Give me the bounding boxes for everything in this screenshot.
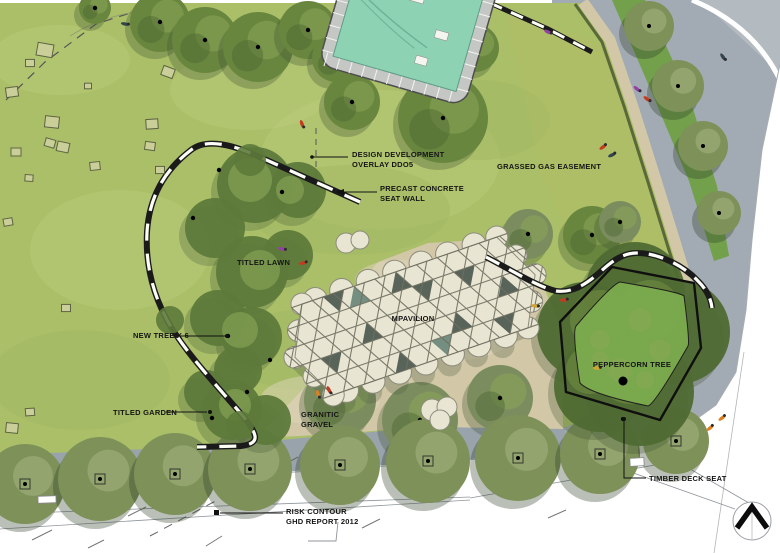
site-plan: DESIGN DEVELOPMENT OVERLAY DDO5 PRECAST … (0, 0, 780, 553)
north-arrow-icon (733, 502, 771, 540)
site-plan-canvas (0, 0, 780, 553)
peppercorn-trunk-dot (619, 377, 628, 386)
